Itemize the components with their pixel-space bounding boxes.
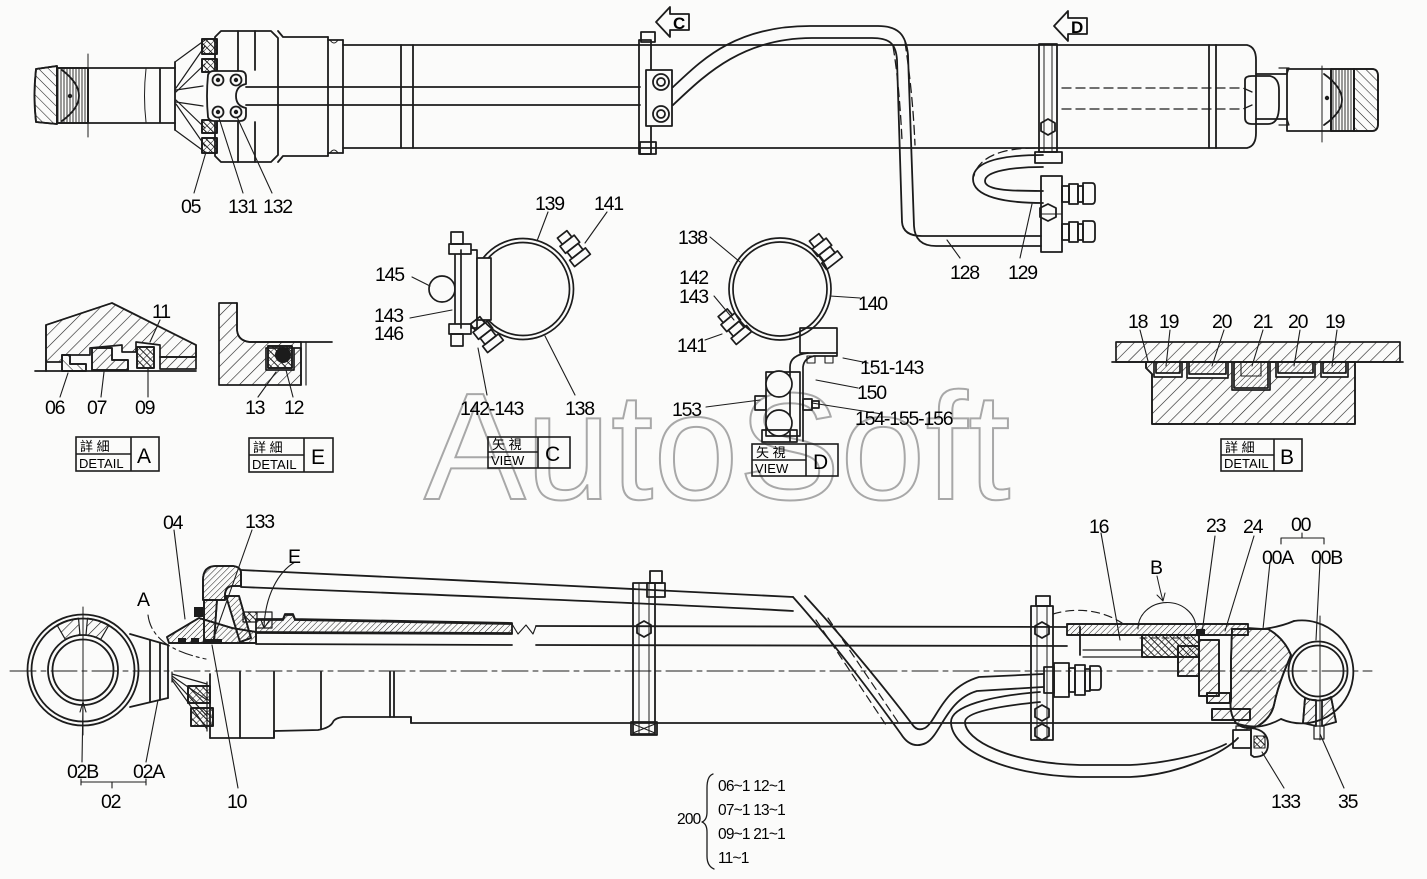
svg-text:151-143: 151-143 <box>860 357 924 379</box>
svg-text:E: E <box>311 446 325 469</box>
svg-text:B: B <box>1280 446 1294 469</box>
svg-text:132: 132 <box>263 196 292 218</box>
svg-text:DETAIL: DETAIL <box>79 456 124 471</box>
svg-text:154-155-156: 154-155-156 <box>855 408 953 430</box>
svg-text:138: 138 <box>565 398 594 420</box>
svg-text:02A: 02A <box>133 761 165 783</box>
svg-text:133: 133 <box>245 511 274 533</box>
svg-text:140: 140 <box>858 293 888 315</box>
svg-text:矢 視: 矢 視 <box>492 437 522 452</box>
svg-text:23: 23 <box>1206 515 1226 537</box>
svg-text:150: 150 <box>857 382 887 404</box>
svg-text:138: 138 <box>678 227 707 249</box>
svg-text:13: 13 <box>245 397 265 419</box>
svg-text:DETAIL: DETAIL <box>252 457 297 472</box>
svg-text:VIEW: VIEW <box>491 453 525 468</box>
svg-text:VIEW: VIEW <box>755 461 789 476</box>
svg-text:139: 139 <box>535 193 564 215</box>
svg-text:詳 細: 詳 細 <box>1225 440 1255 455</box>
svg-text:詳 細: 詳 細 <box>253 440 283 455</box>
svg-text:133: 133 <box>1271 791 1300 813</box>
svg-text:矢 視: 矢 視 <box>756 445 786 460</box>
svg-text:128: 128 <box>950 262 979 284</box>
svg-text:153: 153 <box>672 399 701 421</box>
svg-text:24: 24 <box>1243 516 1264 538</box>
svg-text:DETAIL: DETAIL <box>1224 456 1269 471</box>
svg-text:B: B <box>1150 557 1162 579</box>
svg-text:D: D <box>1071 18 1083 37</box>
svg-text:D: D <box>813 451 828 474</box>
svg-text:11~1: 11~1 <box>718 850 749 867</box>
svg-text:02: 02 <box>101 791 121 813</box>
svg-text:21: 21 <box>1253 311 1273 333</box>
svg-text:145: 145 <box>375 264 405 286</box>
svg-text:11: 11 <box>152 301 170 323</box>
svg-text:02B: 02B <box>67 761 98 783</box>
svg-text:12: 12 <box>284 397 304 419</box>
svg-text:09: 09 <box>135 397 155 419</box>
svg-text:19: 19 <box>1325 311 1345 333</box>
svg-text:16: 16 <box>1089 516 1109 538</box>
svg-text:146: 146 <box>374 323 403 345</box>
svg-text:141: 141 <box>594 193 623 215</box>
svg-text:07~1 13~1: 07~1 13~1 <box>718 802 785 819</box>
svg-text:00B: 00B <box>1311 547 1342 569</box>
svg-text:200: 200 <box>677 811 702 828</box>
svg-text:20: 20 <box>1288 311 1309 333</box>
svg-text:142-143: 142-143 <box>460 398 524 420</box>
svg-text:143: 143 <box>679 286 708 308</box>
svg-text:09~1 21~1: 09~1 21~1 <box>718 826 785 843</box>
svg-text:131: 131 <box>228 196 257 218</box>
svg-text:00A: 00A <box>1262 547 1294 569</box>
svg-text:06: 06 <box>45 397 65 419</box>
svg-text:19: 19 <box>1159 311 1179 333</box>
svg-text:C: C <box>673 14 685 33</box>
svg-text:A: A <box>137 589 150 611</box>
svg-text:詳 細: 詳 細 <box>80 439 110 454</box>
svg-text:C: C <box>545 443 560 466</box>
svg-text:20: 20 <box>1212 311 1233 333</box>
svg-text:35: 35 <box>1338 791 1359 813</box>
svg-text:00: 00 <box>1291 514 1312 536</box>
svg-text:141: 141 <box>677 335 706 357</box>
svg-text:06~1 12~1: 06~1 12~1 <box>718 778 785 795</box>
svg-text:A: A <box>137 445 151 468</box>
svg-text:07: 07 <box>87 397 107 419</box>
svg-text:129: 129 <box>1008 262 1037 284</box>
svg-text:18: 18 <box>1128 311 1148 333</box>
svg-text:E: E <box>288 546 301 568</box>
svg-text:04: 04 <box>163 512 184 534</box>
svg-text:05: 05 <box>181 196 202 218</box>
svg-text:10: 10 <box>227 791 248 813</box>
